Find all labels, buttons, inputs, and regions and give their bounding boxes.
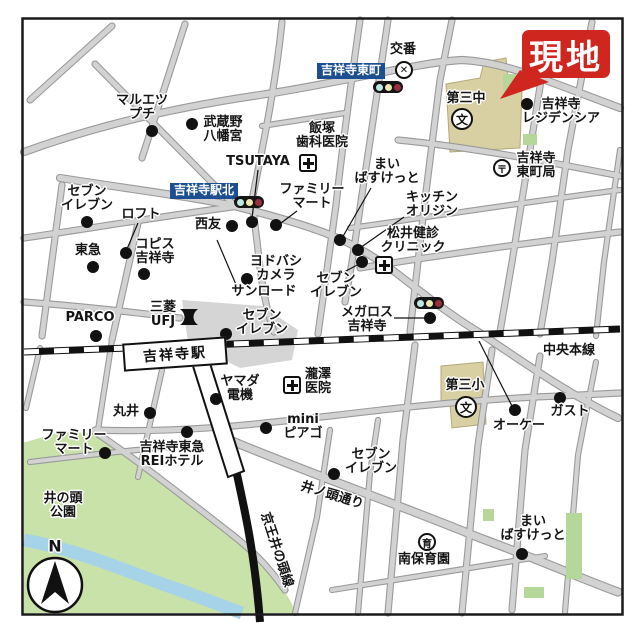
traffic-light-megalos-icon	[414, 297, 444, 309]
seven-mid-label: セブンイレブン	[310, 272, 362, 300]
map-canvas: 吉祥寺駅 現地 交番吉祥寺レジデンシア第三中吉祥寺東町局マルエツプチ武蔵野八幡宮…	[0, 0, 640, 640]
mini-piago-label: miniピアゴ	[283, 413, 322, 441]
seiyu-dot	[226, 220, 238, 232]
parco-label: PARCO	[66, 311, 115, 325]
maibasket-s-label: まいばすけっと	[500, 515, 565, 543]
tokyu-dot	[87, 261, 99, 273]
hachimangu-dot	[186, 118, 198, 130]
sign-higashicho: 吉祥寺東町	[317, 63, 385, 79]
rei-hotel-dot	[181, 426, 193, 438]
keio-line-label: 京王井の頭線	[257, 511, 294, 590]
kitchen-origin-dot	[352, 244, 364, 256]
yodobashi-label: ヨドバシカメラ	[250, 255, 302, 283]
kouban-label: 交番	[390, 43, 416, 57]
copis-label: コピス吉祥寺	[135, 238, 174, 266]
parco-dot	[90, 330, 102, 342]
seven-center-label: セブンイレブン	[236, 309, 288, 337]
maibasket-s-dot	[516, 548, 528, 560]
gusto-label: ガスト	[550, 405, 589, 419]
kitchen-origin-label: キッチンオリジン	[406, 191, 458, 219]
traffic-light-ekikita-icon	[234, 196, 264, 208]
school-daisanchu-icon: 文	[451, 108, 473, 130]
genchi-badge: 現地	[522, 30, 610, 78]
school-daisansho-icon: 文	[455, 396, 477, 418]
seven-s-label: セブンイレブン	[345, 448, 397, 476]
po-higashicho-label: 吉祥寺東町局	[516, 152, 555, 180]
seven-s-dot	[328, 468, 340, 480]
tsutaya-dot	[246, 216, 258, 228]
tsutaya-label: TSUTAYA	[226, 155, 290, 169]
hospital-iizuka-icon	[299, 154, 317, 172]
iizuka-dental-label: 飯塚歯科医院	[296, 122, 348, 150]
copis-dot	[138, 268, 150, 280]
megalos-dot	[424, 312, 436, 324]
yamada-denki-label: ヤマダ電機	[220, 375, 259, 403]
takizawa-clinic-label: 瀧澤医院	[305, 368, 331, 396]
seven-nw-dot	[81, 216, 93, 228]
inokashira-park-label: 井の頭公園	[43, 492, 82, 520]
seiyu-label: 西友	[195, 218, 221, 232]
residencia-label: 吉祥寺レジデンシア	[522, 98, 600, 126]
minami-hoikuen-label: 南保育園	[398, 553, 450, 567]
sunroad-label: サンロード	[231, 285, 296, 299]
maruetsu-petit-label: マルエツプチ	[116, 94, 168, 122]
hospital-matsui-icon	[375, 256, 393, 274]
kouban-x-icon: ✕	[395, 61, 413, 79]
ok-store-dot	[509, 404, 521, 416]
hospital-takizawa-icon	[283, 376, 301, 394]
maruetsu-dot	[146, 125, 158, 137]
compass-n-label: N	[48, 537, 61, 554]
seven-mid-dot	[356, 256, 368, 268]
chuo-line-label: 中央本線	[543, 344, 595, 358]
maibasket-n-dot	[334, 234, 346, 246]
mitsubishi-ufj-label: 三菱UFJ	[150, 301, 176, 329]
rei-hotel-label: 吉祥寺東急REIホテル	[139, 441, 204, 469]
sign-ekikita: 吉祥寺駅北	[170, 183, 238, 199]
loft-label: ロフト	[121, 208, 160, 222]
mini-piago-dot	[260, 422, 272, 434]
bank-ufj-icon	[177, 306, 201, 332]
marui-dot	[144, 407, 156, 419]
gusto-dot	[554, 392, 566, 404]
maibasket-n-label: まいばすけっと	[354, 158, 419, 186]
tokyu-label: 東急	[75, 244, 101, 258]
seven-nw-label: セブンイレブン	[61, 185, 113, 213]
station-label: 吉祥寺駅	[122, 336, 228, 371]
hachimangu-label: 武蔵野八幡宮	[203, 116, 242, 144]
inokashira-dori-label: 井ノ頭通り	[299, 480, 365, 512]
map-overlay: 吉祥寺駅 現地 交番吉祥寺レジデンシア第三中吉祥寺東町局マルエツプチ武蔵野八幡宮…	[0, 0, 640, 640]
marui-label: 丸井	[113, 405, 139, 419]
loft-dot	[120, 247, 132, 259]
daisanchu-label: 第三中	[446, 92, 485, 106]
daisansho-label: 第三小	[445, 379, 484, 393]
post-office-icon: 〒	[493, 159, 511, 177]
megalos-label: メガロス吉祥寺	[341, 306, 393, 334]
nursery-minami-icon: 育	[418, 533, 436, 551]
famima-kita-label: ファミリーマート	[279, 183, 344, 211]
famima-kita-dot	[270, 219, 282, 231]
famima-s-label: ファミリーマート	[41, 429, 106, 457]
traffic-light-higashicho-icon	[373, 81, 403, 93]
ok-store-label: オーケー	[493, 419, 545, 433]
matsui-clinic-label: 松井健診クリニック	[380, 227, 445, 255]
